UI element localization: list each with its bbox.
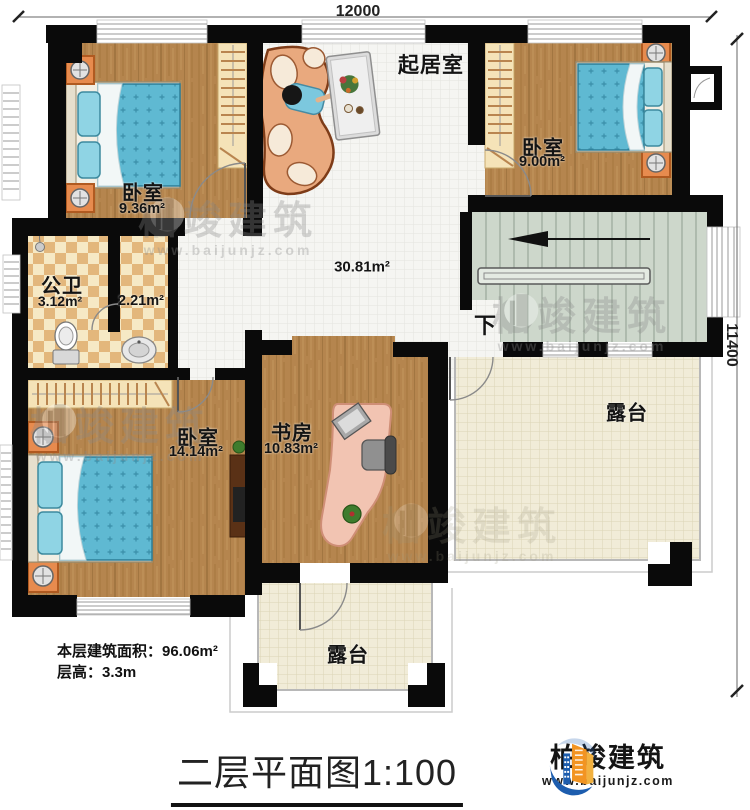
stair-handrail: [478, 268, 650, 284]
tv-cabinet: [230, 441, 247, 537]
drawing-title-name: 二层平面图: [177, 752, 362, 793]
stair-landing: [472, 300, 500, 342]
brand-logo: 柏竣建筑 www.baijunjz.com: [542, 736, 674, 788]
study-doorway-floor: [292, 336, 395, 360]
terrace-right-floor: [455, 357, 700, 560]
closet-bl: [28, 380, 172, 408]
wardrobe-tl: [218, 43, 247, 168]
wardrobe-tr: [485, 43, 514, 168]
bay-window: [691, 74, 714, 102]
drawing-title-scale: 1:100: [362, 752, 457, 793]
staircase: [472, 212, 723, 342]
toilet: [53, 322, 79, 364]
floor-plan-drawing: [0, 0, 750, 810]
bed-bl: [28, 455, 152, 562]
bed-tr: [576, 62, 672, 152]
brand-logo-icon: [542, 736, 604, 798]
floor-plan-page: 柏竣建筑 www.baijunjz.com 柏竣建筑 www.baijunjz.…: [0, 0, 750, 810]
wash-basin: [122, 337, 156, 363]
coffee-table: [326, 52, 380, 141]
drawing-title: 二层平面图1:100: [171, 744, 463, 807]
bed-tl: [66, 82, 180, 188]
